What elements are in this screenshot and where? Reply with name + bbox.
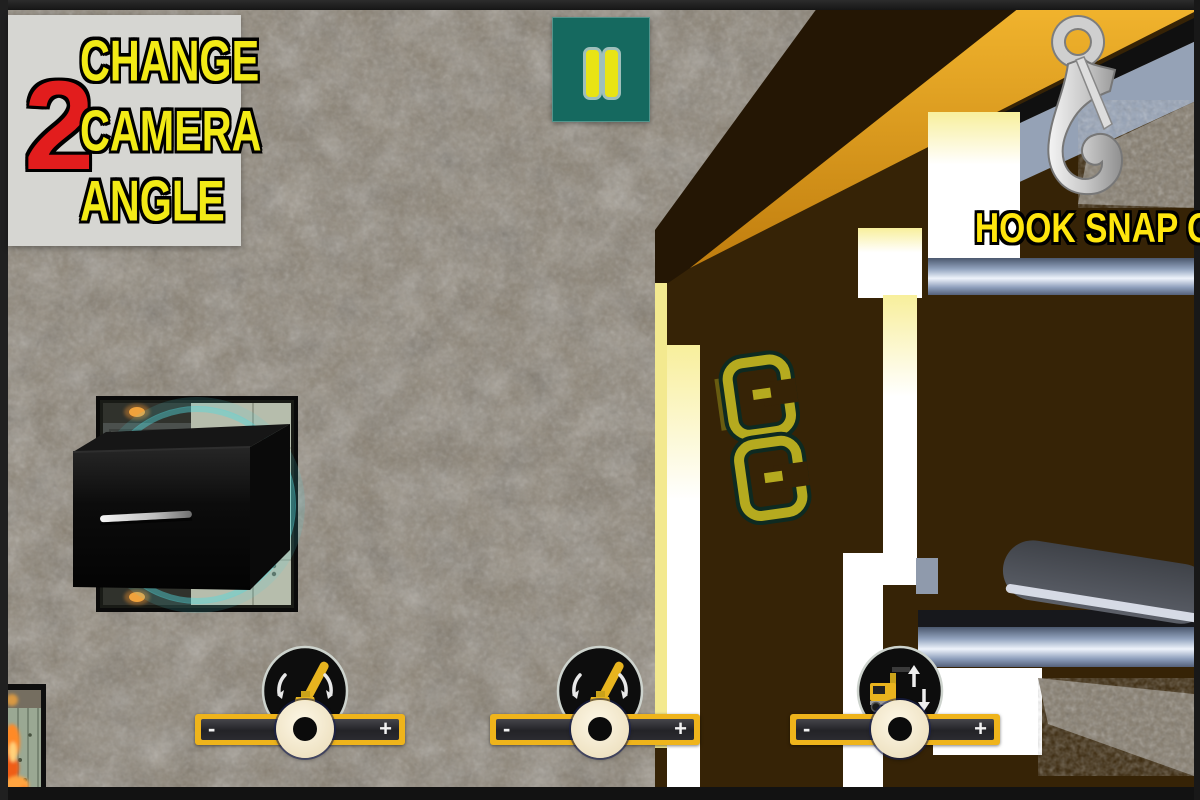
crane-rail-bar — [928, 258, 1198, 295]
screen-edge-right — [1194, 0, 1200, 800]
crane-boom-slider-2-handle[interactable] — [571, 700, 629, 758]
truck-lift-slider-handle[interactable] — [871, 700, 929, 758]
truck-lift-slider-decrease[interactable]: - — [803, 719, 810, 739]
crane-boom-slider-2-decrease[interactable]: - — [503, 719, 510, 739]
hook-status-label: HOOK SNAP ON — [942, 202, 1198, 254]
truck-lift-slider-increase[interactable]: + — [974, 719, 987, 739]
crane-boom-slider-1-handle[interactable] — [276, 700, 334, 758]
crane-hook-icon[interactable] — [1012, 8, 1138, 208]
crane-boom-slider-1: - + — [193, 645, 417, 767]
cargo-crate — [73, 424, 290, 590]
screen-edge-bottom — [0, 787, 1200, 800]
screen-edge-left — [0, 0, 8, 800]
crane-boom-slider-1-decrease[interactable]: - — [208, 719, 215, 739]
crane-boom-slider-2-increase[interactable]: + — [674, 719, 687, 739]
crane-boom-slider-2: - + — [488, 645, 712, 767]
pause-button[interactable] — [552, 17, 650, 122]
game-screen: 2 CHANGE CAMERA ANGLE HOOK SNAP ON — [0, 0, 1200, 800]
truck-lift-slider: - + — [788, 645, 1012, 767]
change-camera-angle-button[interactable]: 2 CHANGE CAMERA ANGLE — [8, 15, 241, 246]
crane-boom-slider-1-increase[interactable]: + — [379, 719, 392, 739]
camera-angle-label: CHANGE CAMERA ANGLE — [80, 27, 313, 237]
